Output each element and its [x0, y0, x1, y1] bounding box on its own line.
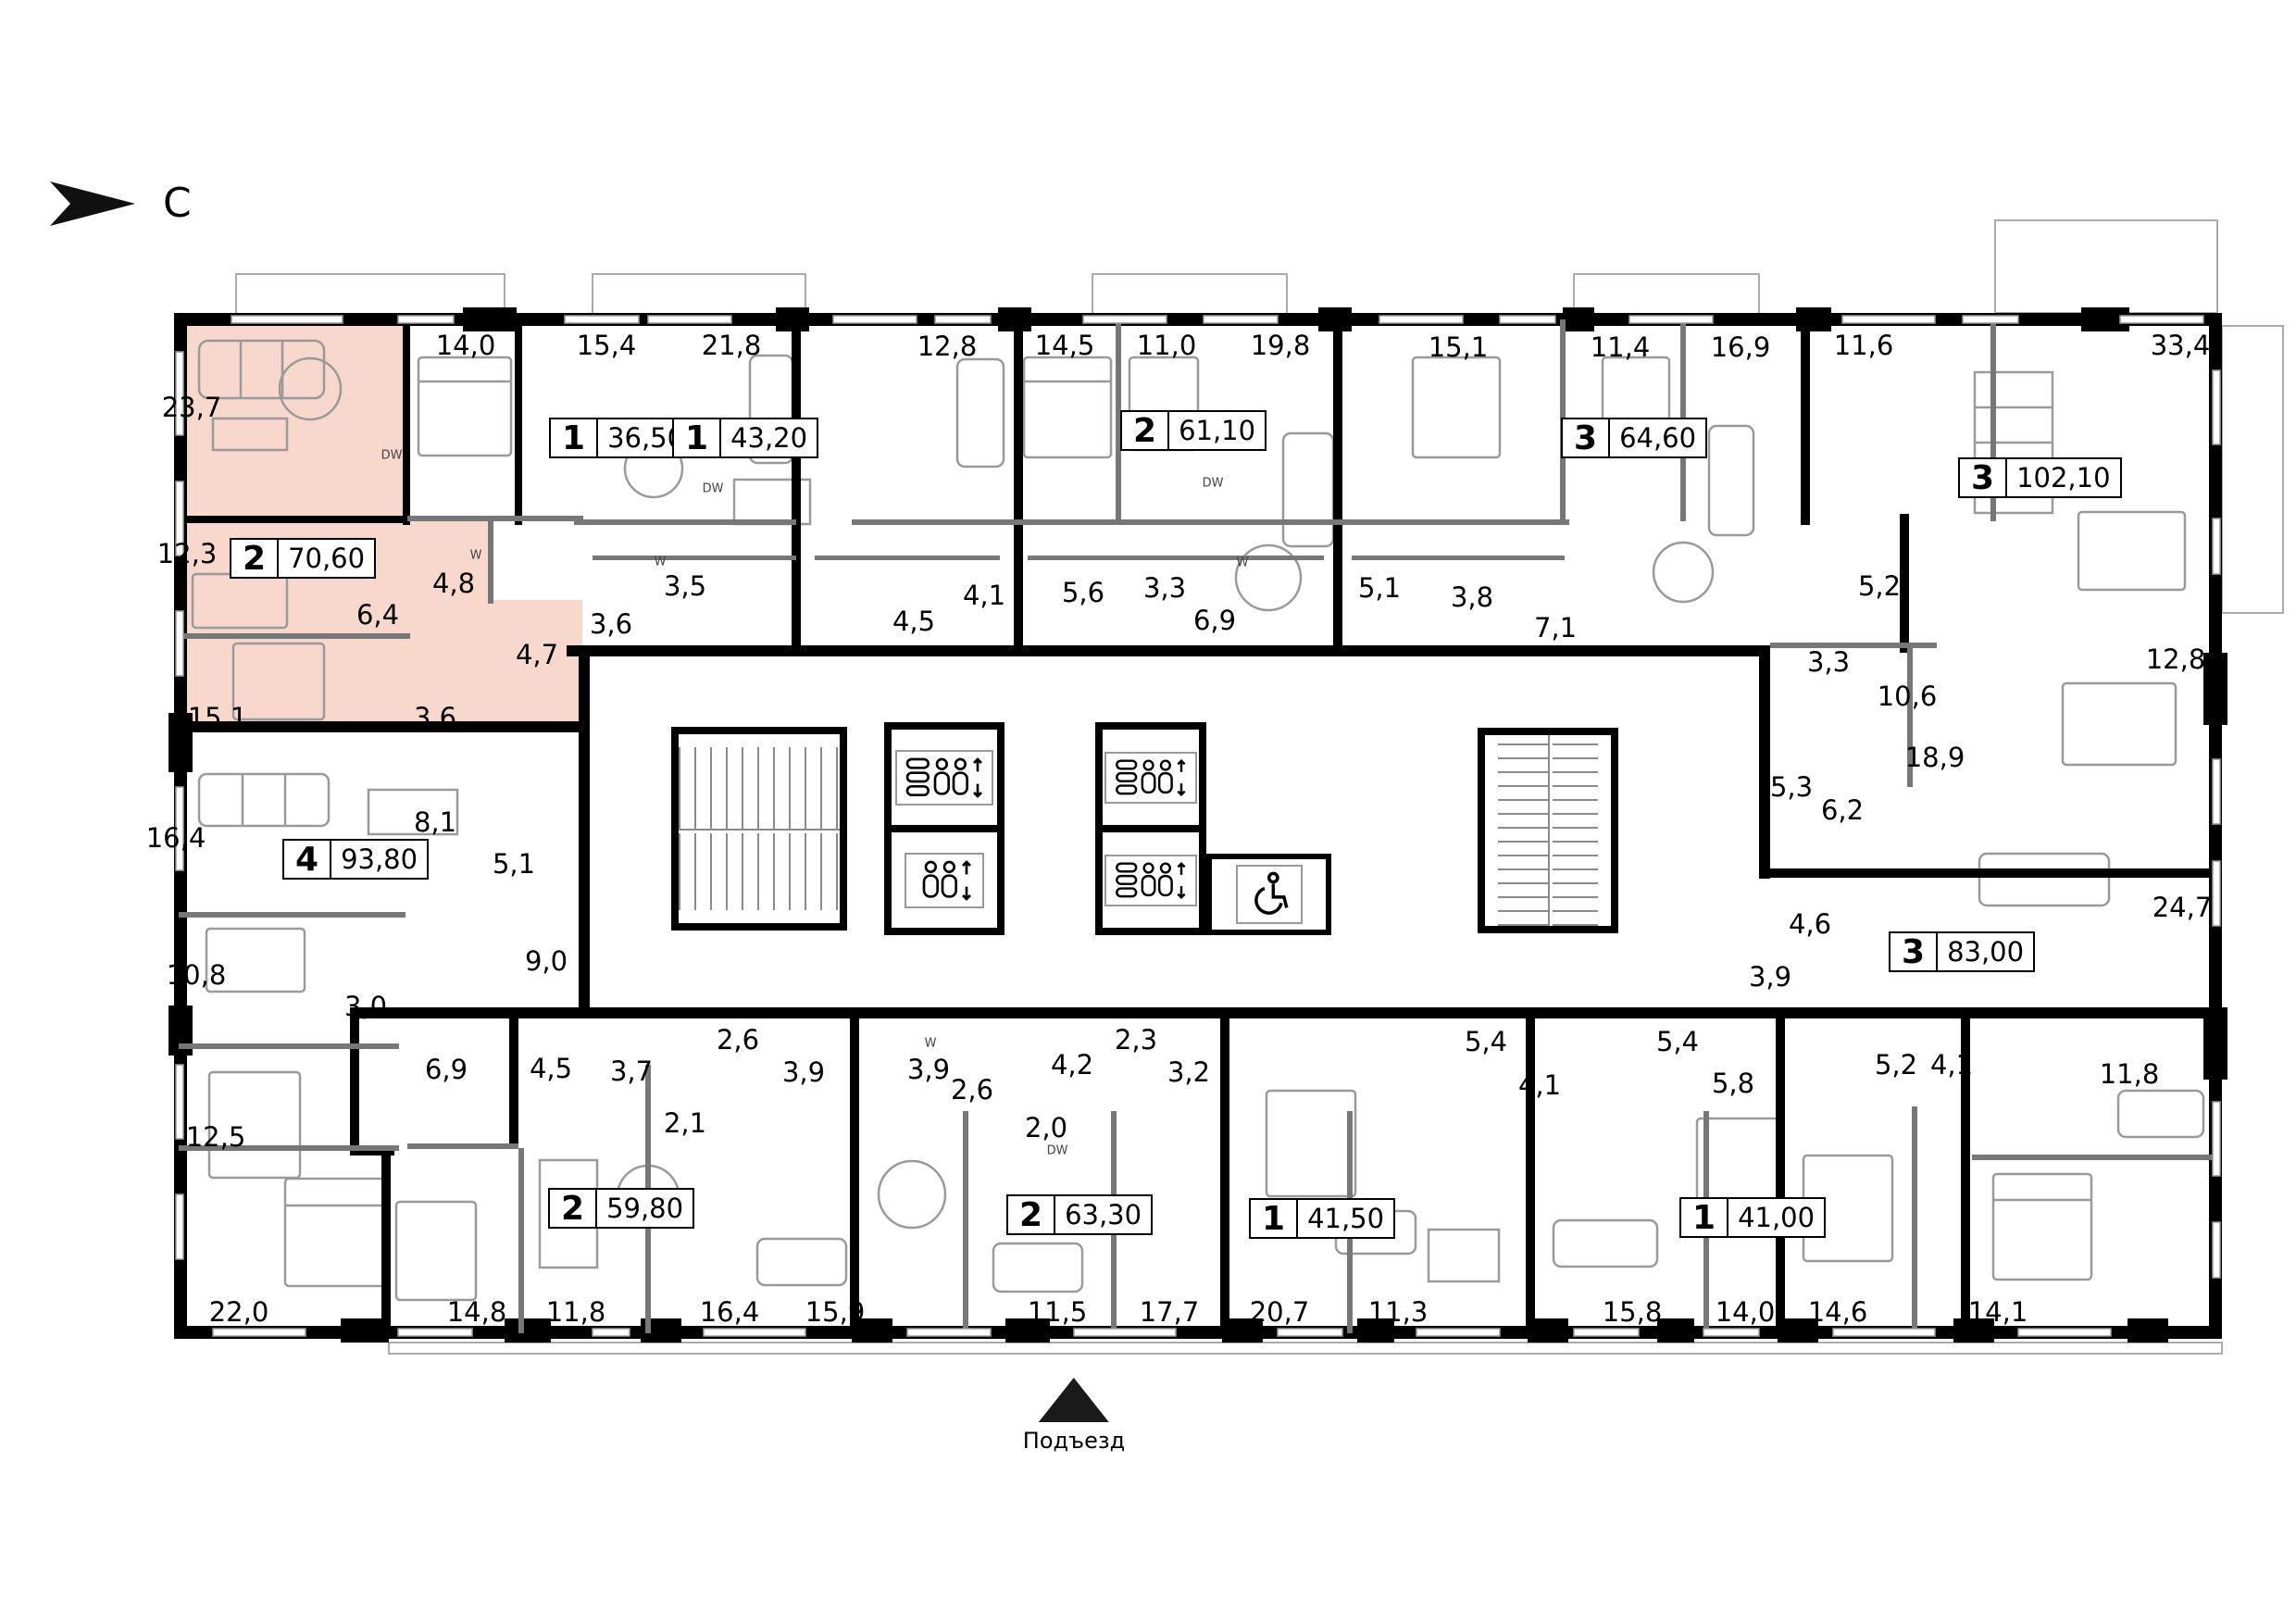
apartment-rooms-count: 2	[1008, 1196, 1055, 1233]
freight-elevator-icon	[1104, 855, 1197, 906]
room-area-label: 3,6	[590, 608, 632, 640]
appliance-marker: DW	[381, 449, 403, 463]
room-area-label: 15,1	[1429, 331, 1489, 363]
apartment-badge-apt-41-50[interactable]: 141,50	[1249, 1198, 1395, 1239]
apartment-area: 102,10	[2007, 459, 2119, 496]
room-area-label: 11,6	[1834, 330, 1894, 361]
room-area-label: 14,5	[1035, 330, 1095, 361]
staircase-right	[1478, 728, 1618, 933]
room-area-label: 5,1	[1358, 572, 1401, 604]
room-area-label: 12,8	[917, 331, 978, 362]
room-area-label: 17,7	[1140, 1296, 1200, 1328]
apartment-area: 83,00	[1938, 933, 2033, 970]
apartment-badge-apt-63-30[interactable]: 263,30	[1006, 1194, 1153, 1235]
room-area-label: 11,4	[1591, 331, 1651, 363]
room-area-label: 23,7	[162, 392, 222, 423]
apartment-area: 61,10	[1169, 412, 1265, 449]
room-area-label: 11,5	[1028, 1296, 1088, 1328]
room-area-label: 4,6	[1789, 908, 1831, 940]
appliance-marker: W	[925, 1037, 937, 1051]
room-area-label: 5,2	[1858, 570, 1901, 602]
room-area-label: 14,1	[1968, 1296, 2028, 1328]
apartment-badge-apt-61-10[interactable]: 261,10	[1120, 410, 1267, 451]
room-area-label: 15,4	[577, 330, 637, 361]
room-area-label: 3,9	[907, 1054, 950, 1085]
room-area-label: 2,1	[664, 1107, 706, 1139]
room-area-label: 6,4	[356, 599, 399, 631]
wheelchair-icon	[1236, 865, 1303, 924]
room-area-label: 5,6	[1062, 577, 1104, 608]
apartment-area: 70,60	[279, 540, 374, 577]
stair-treads	[1498, 735, 1598, 926]
apartment-rooms-count: 4	[284, 841, 331, 878]
room-area-label: 4,8	[432, 568, 475, 599]
freight-elevator-icon	[1104, 752, 1197, 804]
room-area-label: 3,9	[1749, 961, 1791, 993]
room-area-label: 4,2	[1051, 1049, 1093, 1081]
room-area-label: 20,7	[1250, 1296, 1310, 1328]
room-area-label: 16,4	[700, 1296, 760, 1328]
room-area-label: 14,6	[1808, 1296, 1868, 1328]
room-area-label: 3,6	[414, 702, 456, 733]
apartment-rooms-count: 2	[231, 540, 279, 577]
room-area-label: 2,3	[1115, 1024, 1157, 1056]
room-area-label: 11,3	[1368, 1296, 1429, 1328]
apartment-badge-apt-64-60[interactable]: 364,60	[1561, 418, 1707, 458]
room-area-label: 3,0	[344, 991, 387, 1022]
room-area-label: 15,9	[805, 1296, 866, 1328]
room-area-label: 4,5	[530, 1053, 572, 1084]
apartment-badge-apt-41-00[interactable]: 141,00	[1679, 1197, 1826, 1238]
elevator-core-right	[1095, 722, 1206, 935]
room-area-label: 15,8	[1603, 1296, 1663, 1328]
room-area-label: 4,7	[516, 639, 558, 670]
room-area-label: 14,0	[436, 330, 496, 361]
apartment-badge-apt-102-10[interactable]: 3102,10	[1958, 457, 2122, 498]
apartment-area: 64,60	[1610, 419, 1705, 456]
room-area-label: 5,4	[1656, 1026, 1699, 1057]
elevator-freight	[1103, 730, 1199, 825]
room-area-label: 5,4	[1465, 1026, 1507, 1057]
passenger-elevator-icon	[905, 853, 984, 908]
room-area-label: 18,9	[1905, 742, 1965, 773]
room-area-label: 24,7	[2152, 892, 2213, 923]
apartment-rooms-count: 3	[1890, 933, 1938, 970]
apartment-badge-apt-83-00[interactable]: 383,00	[1889, 931, 2035, 972]
elevator-freight	[892, 730, 997, 825]
appliance-marker: W	[655, 556, 667, 569]
room-area-label: 19,8	[1251, 330, 1311, 361]
apartment-badge-apt-59-80[interactable]: 259,80	[548, 1188, 694, 1229]
apartment-rooms-count: 3	[1960, 459, 2007, 496]
room-area-label: 5,2	[1875, 1049, 1917, 1081]
room-area-label: 16,4	[146, 822, 206, 854]
room-area-label: 3,5	[664, 570, 706, 602]
appliance-marker: DW	[1203, 477, 1224, 491]
appliance-marker: W	[1237, 556, 1249, 570]
room-area-label: 6,9	[1193, 605, 1236, 636]
apartment-badge-apt-70-60[interactable]: 270,60	[230, 538, 376, 579]
room-area-label: 5,8	[1712, 1068, 1754, 1099]
room-area-label: 12,8	[2146, 643, 2206, 675]
apartment-rooms-count: 2	[1122, 412, 1169, 449]
apartment-rooms-count: 1	[674, 419, 721, 456]
room-area-label: 11,8	[2100, 1058, 2160, 1090]
room-area-label: 3,3	[1143, 572, 1186, 604]
room-area-label: 5,3	[1770, 771, 1813, 803]
room-area-label: 33,4	[2151, 330, 2211, 361]
room-area-label: 7,1	[1534, 612, 1577, 643]
room-area-label: 6,2	[1821, 794, 1864, 826]
apartment-rooms-count: 2	[550, 1190, 597, 1227]
apartment-rooms-count: 3	[1563, 419, 1610, 456]
apartment-area: 43,20	[721, 419, 817, 456]
room-area-label: 14,8	[447, 1296, 507, 1328]
apartment-rooms-count: 1	[551, 419, 598, 456]
apartment-area: 59,80	[597, 1190, 693, 1227]
room-area-label: 5,1	[493, 848, 535, 880]
entrance-arrow-icon	[1039, 1378, 1109, 1422]
room-area-label: 3,2	[1167, 1056, 1210, 1088]
floor-plan-page: С	[0, 0, 2296, 1624]
room-area-label: 10,6	[1878, 681, 1938, 712]
apartment-area: 63,30	[1055, 1196, 1151, 1233]
room-area-label: 4,5	[892, 606, 935, 637]
stair-treads	[679, 747, 840, 910]
apartment-area: 41,00	[1728, 1199, 1824, 1236]
room-area-label: 12,5	[186, 1121, 246, 1153]
room-area-label: 2,6	[717, 1024, 759, 1056]
apartment-rooms-count: 1	[1251, 1200, 1298, 1237]
appliance-marker: DW	[703, 482, 724, 496]
appliance-marker: W	[470, 549, 482, 563]
room-area-label: 6,9	[425, 1054, 468, 1085]
room-area-label: 4,1	[1930, 1049, 1973, 1081]
room-area-label: 2,0	[1025, 1112, 1067, 1143]
apartment-badge-apt-93-80[interactable]: 493,80	[282, 839, 429, 880]
room-area-label: 11,8	[546, 1296, 606, 1328]
apartment-area: 93,80	[331, 841, 427, 878]
apartment-badge-apt-43-20[interactable]: 143,20	[672, 418, 818, 458]
apartment-rooms-count: 1	[1681, 1199, 1728, 1236]
room-area-label: 3,7	[610, 1056, 653, 1087]
room-area-label: 11,0	[1137, 330, 1197, 361]
room-area-label: 9,0	[525, 945, 568, 977]
room-area-label: 10,8	[167, 959, 227, 991]
elevator-core-left	[884, 722, 1004, 935]
room-area-label: 8,1	[414, 806, 456, 838]
room-area-label: 3,8	[1451, 581, 1493, 613]
elevator-freight	[1103, 825, 1199, 928]
room-area-label: 2,6	[951, 1074, 993, 1106]
room-area-label: 16,9	[1711, 331, 1771, 363]
room-area-label: 21,8	[702, 330, 762, 361]
appliance-marker: DW	[1047, 1144, 1068, 1158]
room-area-label: 22,0	[209, 1296, 269, 1328]
room-area-label: 3,9	[782, 1056, 825, 1088]
room-area-label: 3,3	[1807, 646, 1850, 678]
room-area-label: 4,1	[1518, 1069, 1561, 1101]
room-area-label: 4,1	[963, 580, 1005, 611]
entrance-label: Подъезд	[1023, 1428, 1125, 1454]
elevator-passenger	[892, 825, 997, 928]
entrance-indicator: Подъезд	[1023, 1378, 1125, 1454]
apartment-area: 41,50	[1298, 1200, 1393, 1237]
freight-elevator-icon	[895, 750, 993, 806]
wheelchair-accessible-room	[1206, 854, 1331, 935]
room-area-label: 14,0	[1716, 1296, 1776, 1328]
room-area-label: 15,1	[188, 702, 248, 733]
staircase-left	[671, 727, 847, 931]
room-area-label: 12,3	[157, 538, 218, 569]
